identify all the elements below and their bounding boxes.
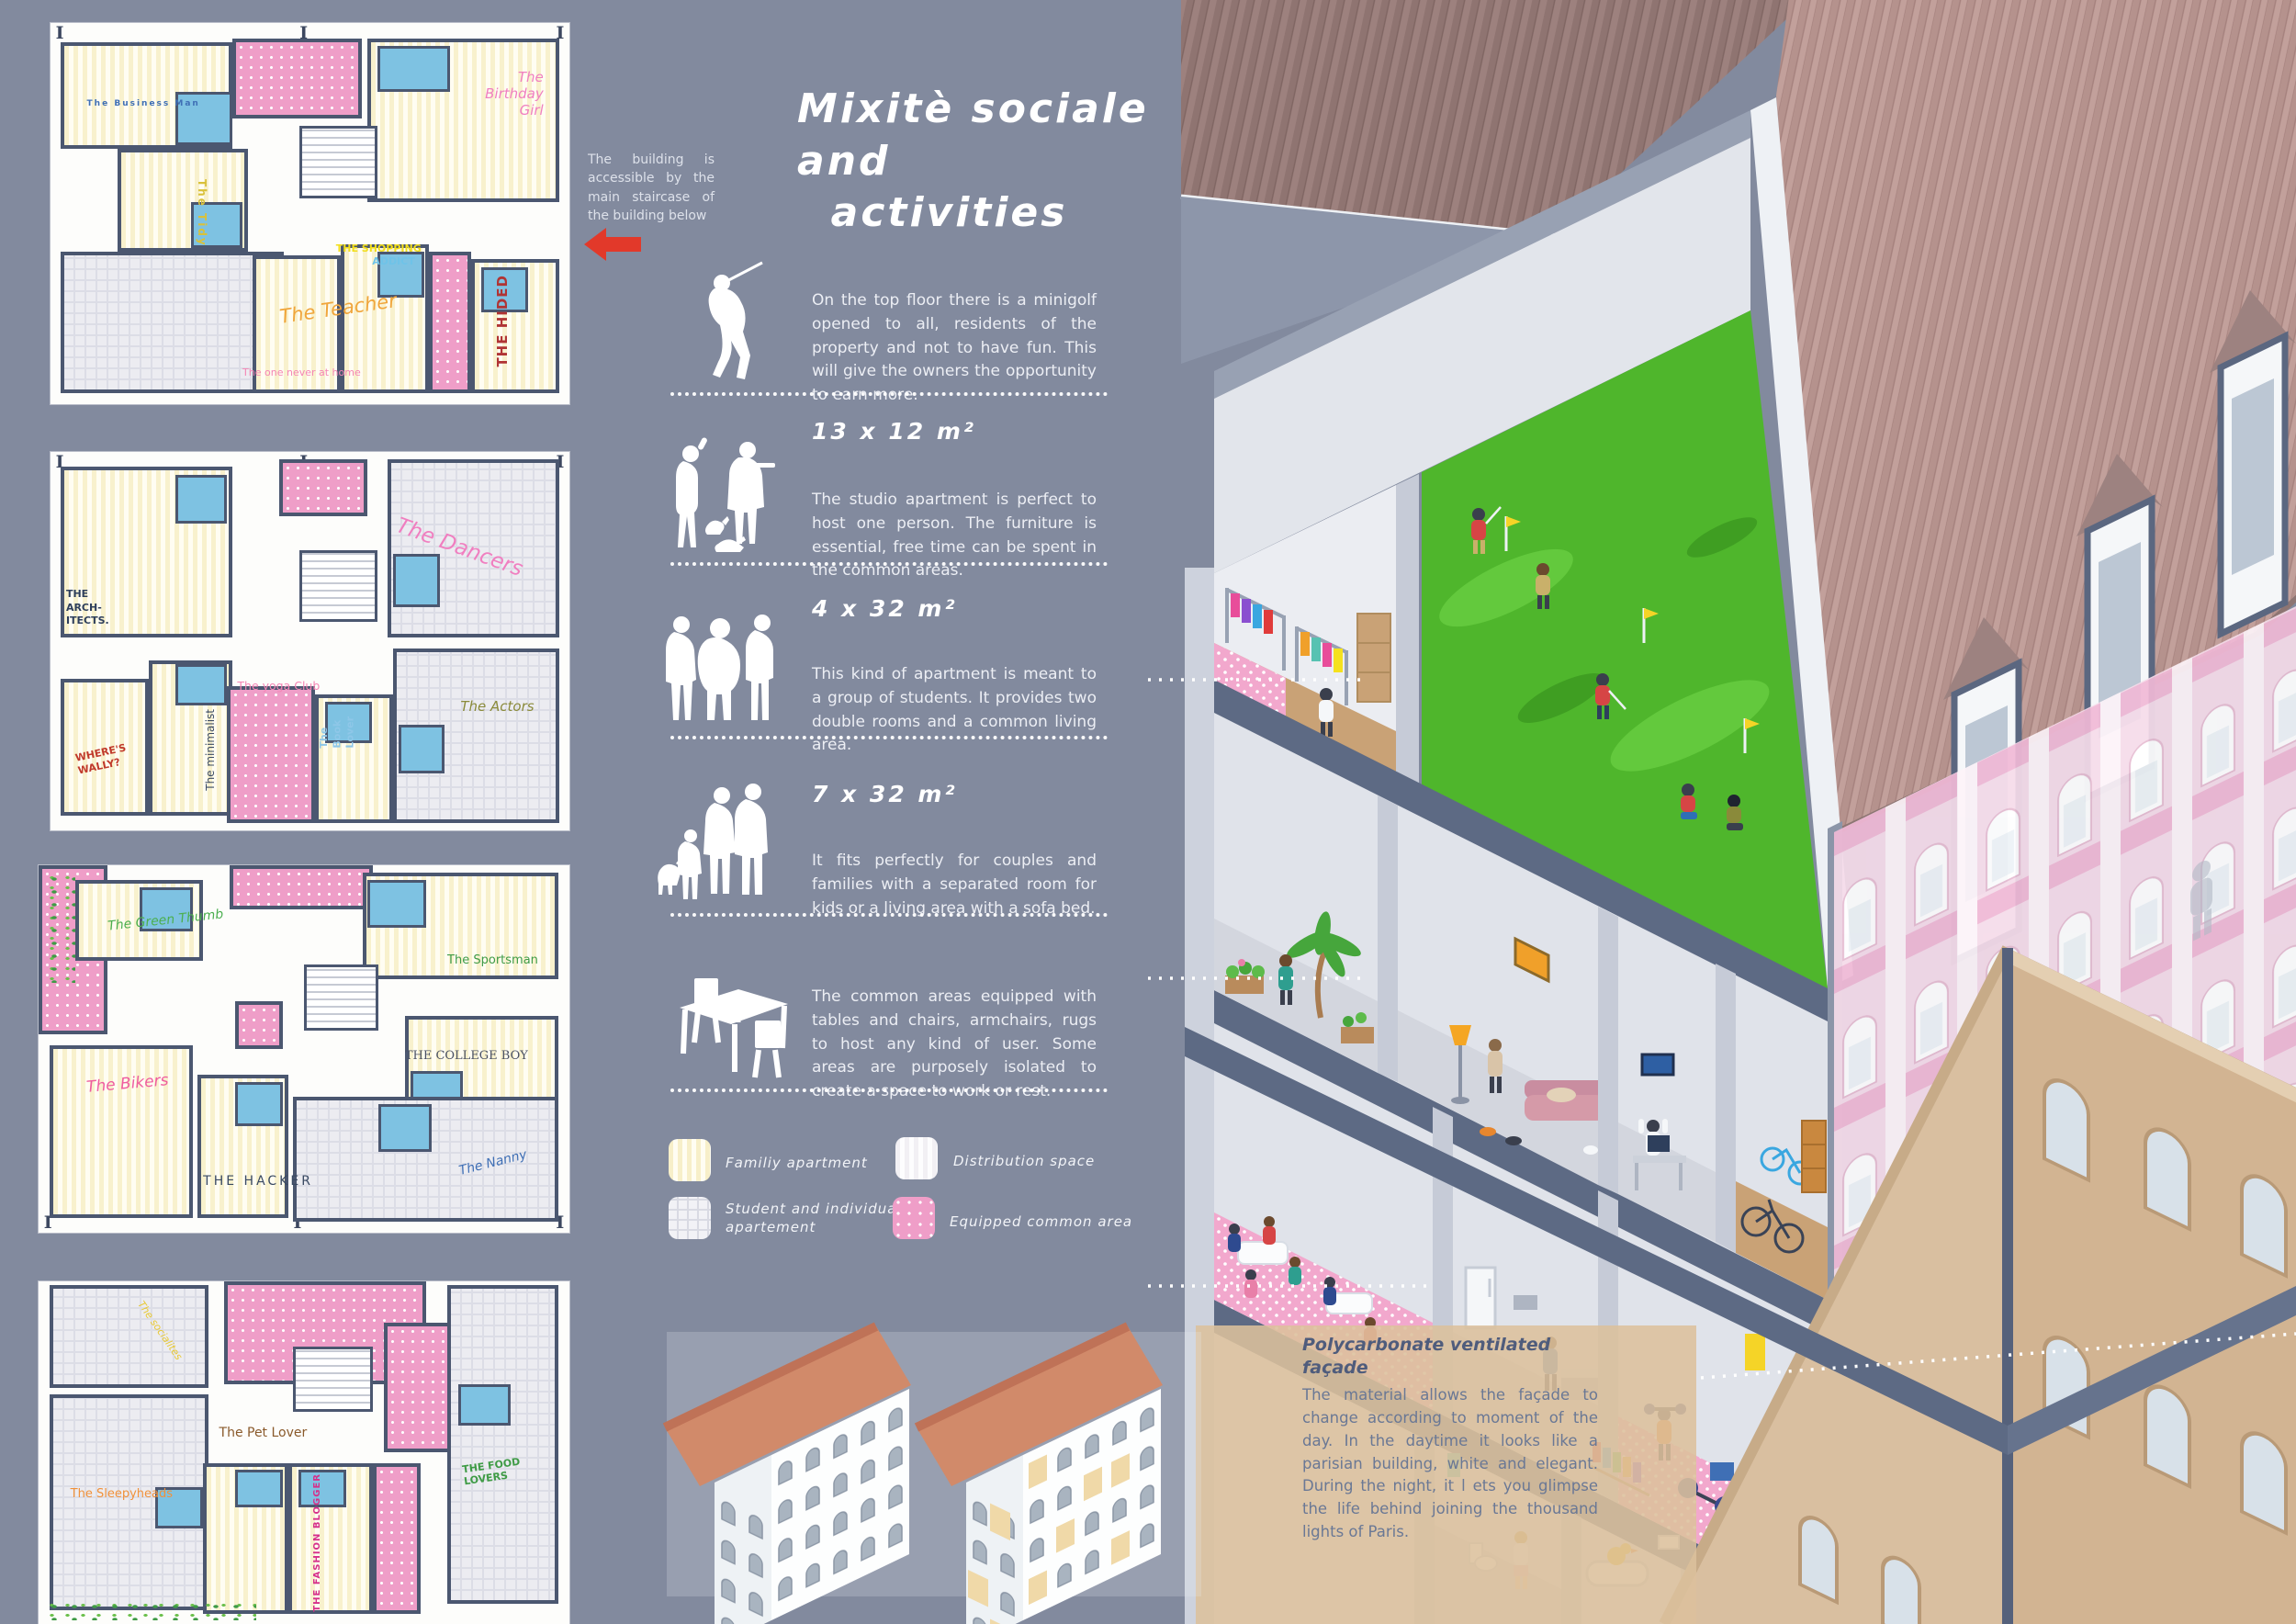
- facade-note: Polycarbonate ventilated façade The mate…: [1302, 1334, 1598, 1544]
- bathroom-room: [175, 475, 228, 524]
- bathroom-room: [399, 725, 445, 774]
- students-paragraph: This kind of apartment is meant to a gro…: [812, 663, 1097, 758]
- dotted-divider: [670, 562, 1108, 566]
- apartment-label: THE FASHION BLOGGER: [312, 1473, 322, 1612]
- staircase: [299, 550, 377, 622]
- plants-decoration: [44, 1600, 256, 1620]
- students-group-icon: [663, 606, 787, 726]
- apartment-label: THE HIDED: [494, 275, 511, 367]
- apartment-label: THE ARCH- ITECTS.: [66, 588, 109, 627]
- bathroom-room: [235, 1082, 283, 1126]
- poster-canvas: III The Business Man The Tidy The Teache…: [0, 0, 2296, 1624]
- facade-note-text: The material allows the façade to change…: [1302, 1384, 1598, 1543]
- legend-label-student: Student and individual apartement: [726, 1200, 918, 1237]
- day-night-buildings-illustration: [663, 1312, 1214, 1624]
- bathroom-room: [378, 1104, 432, 1152]
- apartment-label: The Book Lover: [318, 716, 357, 749]
- staircase: [299, 126, 377, 198]
- floor-plan-third: III The Green Thumb The Sportsman THE CO…: [39, 865, 569, 1233]
- common-area-room: [373, 1463, 421, 1614]
- plants-decoration: [44, 873, 76, 983]
- bathroom-room: [235, 1470, 283, 1507]
- dotted-divider: [670, 1088, 1108, 1092]
- legend-swatch-family: [669, 1139, 711, 1181]
- common-area-room: [279, 459, 367, 516]
- legend-label-family: Familiy apartment: [726, 1154, 868, 1172]
- floor-plan-second: III THE ARCH- ITECTS. The Dancers The Ac…: [51, 452, 569, 830]
- legend-label-common: Equipped common area: [950, 1212, 1132, 1231]
- bathroom-room: [175, 664, 228, 705]
- common-area-room: [230, 865, 373, 909]
- common-area-room: [384, 1323, 453, 1453]
- sofa: [1525, 1080, 1605, 1121]
- bathroom-room: [458, 1384, 512, 1426]
- apartment-label: The Actors: [460, 698, 534, 715]
- legend-swatch-student: [669, 1197, 711, 1239]
- family-paragraph: It fits perfectly for couples and famili…: [812, 850, 1097, 920]
- apartment-label: The minimalist: [204, 709, 217, 791]
- family-size-heading: 7 x 32 m²: [812, 781, 957, 807]
- common-area-room: [235, 1001, 283, 1049]
- apartment-label: The Sleepyheads: [71, 1487, 173, 1501]
- minigolf-paragraph: On the top floor there is a minigolf ope…: [812, 289, 1097, 408]
- arrow-left-icon: [584, 228, 641, 261]
- studio-size-heading: 13 x 12 m²: [812, 418, 976, 445]
- floor-plan-bottom: The socialites The Sleepyheads The Pet L…: [39, 1281, 569, 1624]
- legend-label-distribution: Distribution space: [953, 1152, 1095, 1170]
- bathroom-room: [393, 554, 440, 607]
- bathroom-room: [377, 46, 450, 92]
- apartment-label: The Tidy: [196, 179, 208, 247]
- apartment-label: ADDICT: [372, 255, 414, 267]
- staircase: [293, 1347, 373, 1412]
- legend-swatch-common: [893, 1197, 935, 1239]
- apartment-label: The Pet Lover: [219, 1426, 308, 1440]
- studio-paragraph: The studio apartment is perfect to host …: [812, 489, 1097, 583]
- dotted-divider: [670, 736, 1108, 739]
- table-chairs-icon: [667, 969, 800, 1079]
- dotted-divider: [670, 392, 1108, 396]
- bathroom-room: [298, 1470, 346, 1507]
- apartment-label: THE COLLEGE BOY: [405, 1049, 528, 1063]
- building-access-note: The building is accessible by the main s…: [588, 151, 715, 225]
- legend-swatch-distribution: [895, 1137, 938, 1179]
- students-size-heading: 4 x 32 m²: [812, 595, 957, 622]
- floor-plan-top: III The Business Man The Tidy The Teache…: [51, 23, 569, 404]
- common-area-room: [227, 686, 315, 822]
- apartment-room: [50, 1285, 208, 1388]
- common-area-room: [232, 39, 362, 118]
- apartment-label: The Birthday Girl: [450, 69, 544, 118]
- family-icon: [658, 783, 786, 900]
- apartment-room: [50, 1045, 193, 1218]
- apartment-room: [447, 1285, 558, 1604]
- apartment-label: The yoga Club: [237, 679, 320, 693]
- bathroom-room: [367, 880, 426, 928]
- golfer-icon: [696, 259, 779, 383]
- common-areas-paragraph: The common areas equipped with tables an…: [812, 986, 1097, 1104]
- apartment-label: The Sportsman: [447, 953, 538, 967]
- page-title: Mixitè sociale and activities: [797, 84, 1183, 239]
- apartment-label: THE SHOPPING: [336, 242, 422, 254]
- staircase: [304, 964, 378, 1031]
- apartment-label: The one never at home: [242, 367, 361, 378]
- common-area-room: [429, 252, 470, 393]
- apartment-label: The Business Man: [87, 99, 200, 108]
- apartment-label: THE HACKER: [203, 1174, 313, 1189]
- facade-note-heading: Polycarbonate ventilated façade: [1302, 1334, 1598, 1379]
- dotted-divider: [670, 913, 1108, 917]
- studio-residents-icon: [667, 430, 786, 558]
